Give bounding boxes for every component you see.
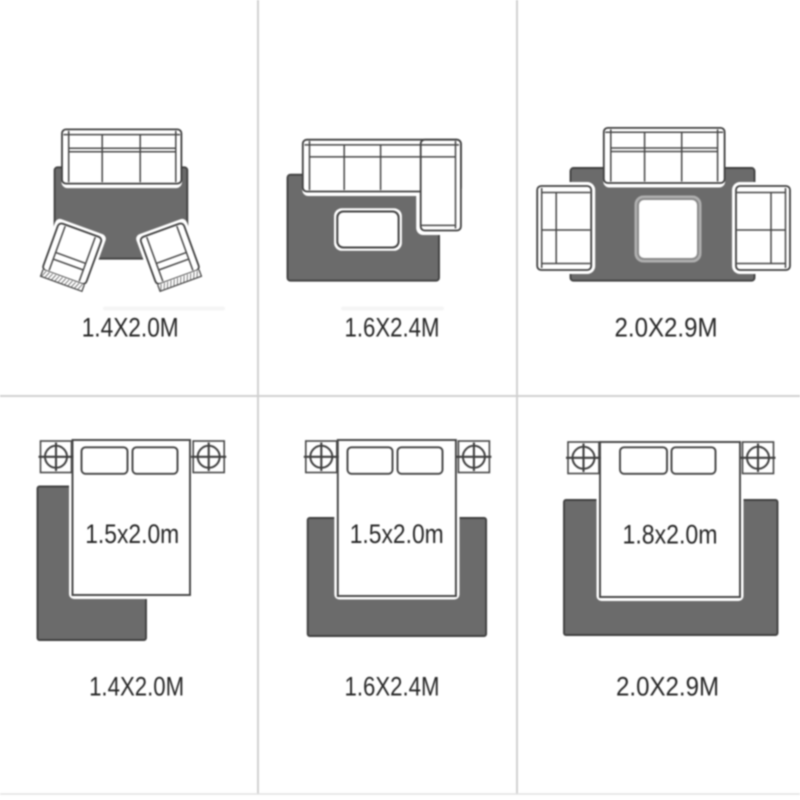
svg-text:1.6X2.4M: 1.6X2.4M [345, 313, 440, 343]
svg-text:1.4X2.0M: 1.4X2.0M [89, 671, 184, 701]
svg-text:1.5x2.0m: 1.5x2.0m [85, 519, 179, 549]
svg-text:2.0X2.9M: 2.0X2.9M [616, 671, 719, 701]
svg-text:1.8x2.0m: 1.8x2.0m [623, 520, 718, 550]
svg-text:1.6X2.4M: 1.6X2.4M [345, 671, 440, 701]
svg-text:2.0X2.9M: 2.0X2.9M [615, 313, 718, 343]
svg-text:1.5x2.0m: 1.5x2.0m [350, 519, 444, 549]
svg-text:1.4X2.0M: 1.4X2.0M [82, 313, 179, 343]
